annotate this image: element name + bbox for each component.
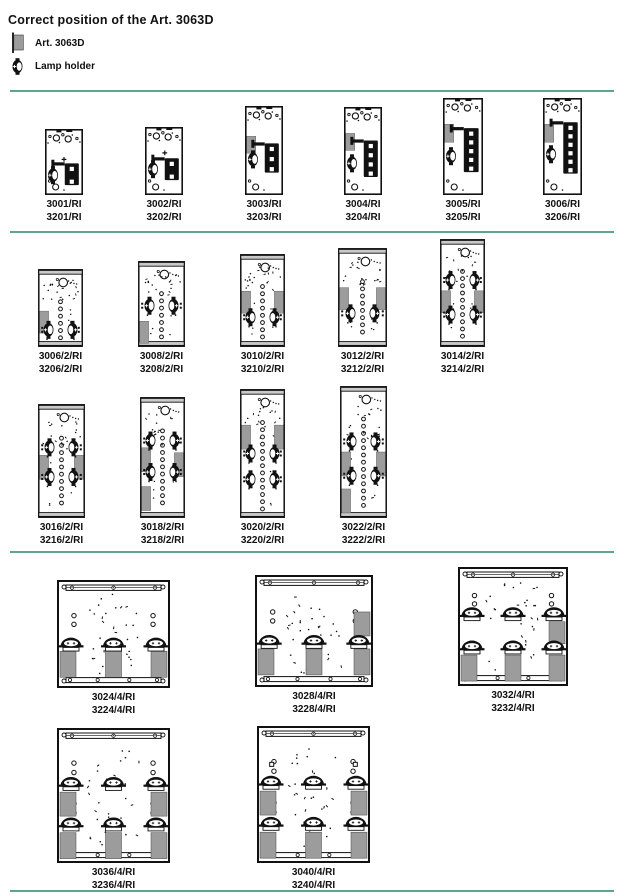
figure-label-3003-ri: 3003/RI3203/RI [218, 199, 310, 224]
panel-drawing-3005-ri [443, 98, 483, 195]
figure-label-3012-2-ri: 3012/2/RI3212/2/RI [317, 351, 409, 376]
part-number: 3222/2/RI [318, 535, 410, 548]
figure-label-3032-4-ri: 3032/4/RI3232/4/RI [467, 690, 559, 715]
figure-label-3020-2-ri: 3020/2/RI3220/2/RI [217, 522, 309, 547]
figure-label-3001-ri: 3001/RI3201/RI [18, 199, 110, 224]
figure-label-3005-ri: 3005/RI3205/RI [417, 199, 509, 224]
figure-label-3004-ri: 3004/RI3204/RI [317, 199, 409, 224]
separator-line [10, 231, 614, 233]
panel-drawing-3040-4-ri [257, 726, 370, 863]
panel-drawing-3022-2-ri [340, 386, 387, 518]
diagram-3002-ri [145, 127, 183, 195]
part-number: 3228/4/RI [268, 704, 360, 717]
part-number: 3210/2/RI [217, 364, 309, 377]
part-number: 3032/4/RI [467, 690, 559, 703]
diagram-3008-2-ri [138, 261, 185, 347]
page-title: Correct position of the Art. 3063D [8, 13, 214, 27]
legend-art-row: Art. 3063D [10, 31, 84, 55]
panel-drawing-3008-2-ri [138, 261, 185, 347]
figure-label-3014-2-ri: 3014/2/RI3214/2/RI [417, 351, 509, 376]
part-number: 3020/2/RI [217, 522, 309, 535]
part-number: 3008/2/RI [116, 351, 208, 364]
diagram-3004-ri [344, 107, 382, 195]
part-number: 3216/2/RI [16, 535, 108, 548]
catalog-page: Correct position of the Art. 3063D Art. … [0, 0, 624, 896]
diagram-3028-4-ri [255, 575, 373, 687]
part-number: 3206/RI [517, 212, 609, 225]
diagram-3006-2-ri [38, 269, 83, 347]
part-number: 3006/RI [517, 199, 609, 212]
legend-art-label: Art. 3063D [35, 38, 84, 49]
part-number: 3232/4/RI [467, 703, 559, 716]
figure-label-3006-ri: 3006/RI3206/RI [517, 199, 609, 224]
diagram-3036-4-ri [57, 728, 170, 863]
part-number: 3201/RI [18, 212, 110, 225]
separator-line [10, 90, 614, 92]
panel-drawing-3016-2-ri [38, 404, 85, 518]
diagram-3024-4-ri [57, 580, 170, 688]
part-number: 3040/4/RI [268, 867, 360, 880]
part-number: 3202/RI [118, 212, 210, 225]
art-3063d-swatch-icon [10, 31, 25, 55]
part-number: 3028/4/RI [268, 691, 360, 704]
legend-lamp-row: Lamp holder [10, 58, 95, 75]
part-number: 3212/2/RI [317, 364, 409, 377]
part-number: 3012/2/RI [317, 351, 409, 364]
part-number: 3218/2/RI [117, 535, 209, 548]
panel-drawing-3014-2-ri [440, 239, 485, 347]
diagram-3014-2-ri [440, 239, 485, 347]
diagram-3018-2-ri [140, 397, 185, 518]
diagram-3022-2-ri [340, 386, 387, 518]
panel-drawing-3032-4-ri [458, 567, 568, 686]
part-number: 3036/4/RI [68, 867, 160, 880]
panel-drawing-3010-2-ri [240, 254, 285, 347]
figure-label-3024-4-ri: 3024/4/RI3224/4/RI [68, 692, 160, 717]
part-number: 3220/2/RI [217, 535, 309, 548]
panel-drawing-3018-2-ri [140, 397, 185, 518]
part-number: 3240/4/RI [268, 880, 360, 893]
figure-label-3006-2-ri: 3006/2/RI3206/2/RI [15, 351, 107, 376]
part-number: 3206/2/RI [15, 364, 107, 377]
figure-label-3002-ri: 3002/RI3202/RI [118, 199, 210, 224]
part-number: 3010/2/RI [217, 351, 309, 364]
part-number: 3204/RI [317, 212, 409, 225]
diagram-3010-2-ri [240, 254, 285, 347]
panel-drawing-3036-4-ri [57, 728, 170, 863]
panel-drawing-3004-ri [344, 107, 382, 195]
figure-label-3036-4-ri: 3036/4/RI3236/4/RI [68, 867, 160, 892]
legend-lamp-label: Lamp holder [35, 61, 95, 72]
panel-drawing-3012-2-ri [338, 248, 387, 347]
part-number: 3205/RI [417, 212, 509, 225]
part-number: 3005/RI [417, 199, 509, 212]
part-number: 3022/2/RI [318, 522, 410, 535]
diagram-3020-2-ri [240, 389, 285, 518]
diagram-3016-2-ri [38, 404, 85, 518]
panel-drawing-3002-ri [145, 127, 183, 195]
part-number: 3024/4/RI [68, 692, 160, 705]
diagram-3006-ri [543, 98, 582, 195]
panel-drawing-3028-4-ri [255, 575, 373, 687]
figure-label-3010-2-ri: 3010/2/RI3210/2/RI [217, 351, 309, 376]
part-number: 3002/RI [118, 199, 210, 212]
part-number: 3018/2/RI [117, 522, 209, 535]
lamp-holder-icon [10, 58, 25, 75]
figure-label-3040-4-ri: 3040/4/RI3240/4/RI [268, 867, 360, 892]
separator-line [10, 551, 614, 553]
figure-label-3018-2-ri: 3018/2/RI3218/2/RI [117, 522, 209, 547]
part-number: 3001/RI [18, 199, 110, 212]
diagram-3003-ri [245, 106, 283, 195]
diagram-3032-4-ri [458, 567, 568, 686]
part-number: 3016/2/RI [16, 522, 108, 535]
part-number: 3203/RI [218, 212, 310, 225]
part-number: 3004/RI [317, 199, 409, 212]
panel-drawing-3024-4-ri [57, 580, 170, 688]
part-number: 3006/2/RI [15, 351, 107, 364]
diagram-3040-4-ri [257, 726, 370, 863]
panel-drawing-3020-2-ri [240, 389, 285, 518]
part-number: 3214/2/RI [417, 364, 509, 377]
part-number: 3003/RI [218, 199, 310, 212]
diagram-3005-ri [443, 98, 483, 195]
panel-drawing-3003-ri [245, 106, 283, 195]
panel-drawing-3001-ri [45, 129, 83, 195]
figure-label-3016-2-ri: 3016/2/RI3216/2/RI [16, 522, 108, 547]
figure-label-3022-2-ri: 3022/2/RI3222/2/RI [318, 522, 410, 547]
part-number: 3014/2/RI [417, 351, 509, 364]
part-number: 3236/4/RI [68, 880, 160, 893]
part-number: 3208/2/RI [116, 364, 208, 377]
panel-drawing-3006-ri [543, 98, 582, 195]
diagram-3012-2-ri [338, 248, 387, 347]
panel-drawing-3006-2-ri [38, 269, 83, 347]
part-number: 3224/4/RI [68, 705, 160, 718]
figure-label-3028-4-ri: 3028/4/RI3228/4/RI [268, 691, 360, 716]
diagram-3001-ri [45, 129, 83, 195]
figure-label-3008-2-ri: 3008/2/RI3208/2/RI [116, 351, 208, 376]
